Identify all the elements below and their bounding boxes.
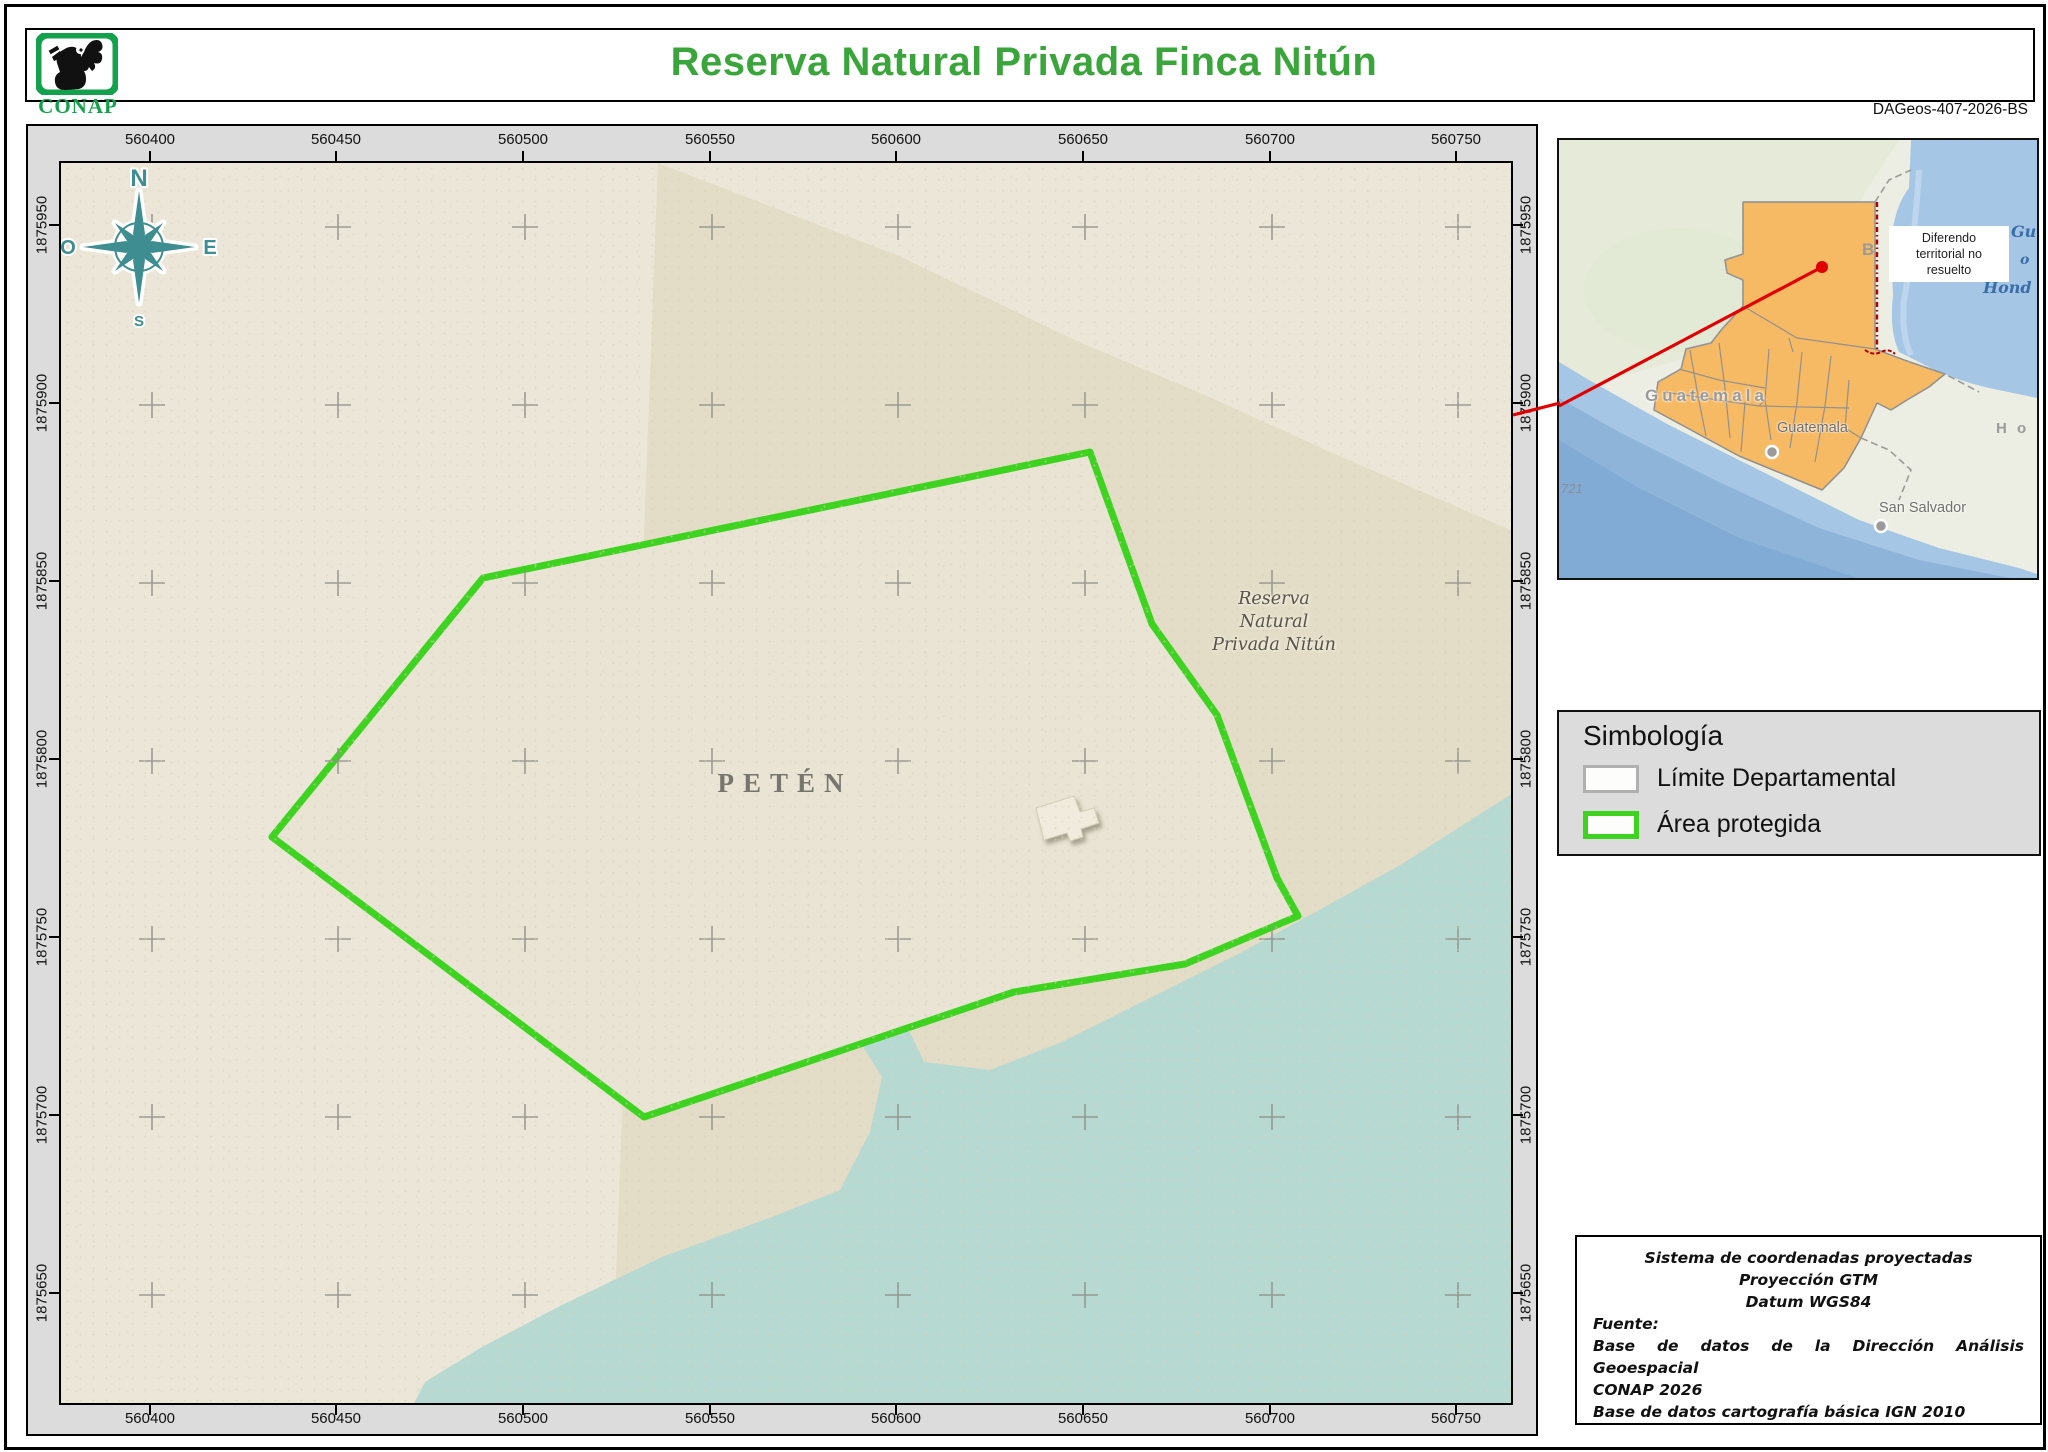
svg-text:E: E [203, 237, 216, 259]
easting-label-top: 560700 [1245, 131, 1295, 148]
northing-label-right: 1875750 [1518, 908, 1535, 966]
northing-label-left: 1875950 [34, 196, 51, 254]
legend-swatch-limite [1583, 765, 1639, 793]
department-label: PETÉN [717, 768, 852, 799]
easting-label-bottom: 560750 [1431, 1410, 1481, 1427]
easting-label-top: 560750 [1431, 131, 1481, 148]
inset-belize-partial-label: B [1862, 240, 1877, 260]
easting-label-bottom: 560450 [311, 1410, 361, 1427]
inset-capital-label: Guatemala [1777, 420, 1848, 436]
legend: Simbología Límite DepartamentalÁrea prot… [1557, 710, 2041, 856]
northing-label-right: 1875850 [1518, 552, 1535, 610]
inset-city-label: San Salvador [1879, 500, 1966, 516]
easting-label-top: 560400 [125, 131, 175, 148]
document-code: DAGeos-407-2026-BS [1873, 101, 2028, 119]
source-lines: Base de datos de la Dirección Análisis G… [1593, 1335, 2024, 1423]
inset-country-label: Guatemala [1645, 386, 1768, 406]
easting-label-top: 560500 [498, 131, 548, 148]
easting-label-bottom: 560550 [685, 1410, 735, 1427]
inset-road-label: 721 [1561, 481, 1583, 496]
inset-locator-map: Guatemala Guatemala San Salvador 721 H o… [1557, 138, 2039, 580]
easting-label-top: 560600 [871, 131, 921, 148]
map-sheet: Reserva Natural Privada Finca Nitún CONA… [0, 0, 2048, 1452]
conap-logo [36, 33, 118, 95]
northing-label-right: 1875900 [1518, 374, 1535, 432]
compass-rose: N E O S [59, 164, 224, 334]
easting-label-bottom: 560650 [1058, 1410, 1108, 1427]
northing-label-right: 1875800 [1518, 730, 1535, 788]
northing-label-right: 1875950 [1518, 196, 1535, 254]
legend-item-protegida: Área protegida [1583, 810, 1821, 839]
northing-label-right: 1875650 [1518, 1264, 1535, 1322]
legend-label: Área protegida [1657, 810, 1821, 839]
easting-label-bottom: 560500 [498, 1410, 548, 1427]
capital-city-dot [1766, 446, 1778, 458]
easting-label-top: 560650 [1058, 131, 1108, 148]
page-title: Reserva Natural Privada Finca Nitún [0, 40, 2048, 85]
svg-text:O: O [60, 237, 76, 259]
gulf-label-partial-1: Gu [2011, 222, 2036, 241]
northing-label-left: 1875900 [34, 374, 51, 432]
easting-label-bottom: 560400 [125, 1410, 175, 1427]
projection-info: Sistema de coordenadas proyectadasProyec… [1593, 1247, 2024, 1313]
easting-label-top: 560450 [311, 131, 361, 148]
svg-text:S: S [134, 313, 144, 330]
northing-label-left: 1875850 [34, 552, 51, 610]
northing-label-right: 1875700 [1518, 1086, 1535, 1144]
northing-label-left: 1875650 [34, 1264, 51, 1322]
easting-label-bottom: 560700 [1245, 1410, 1295, 1427]
inset-honduras-partial-label: H o [1996, 420, 2029, 437]
legend-swatch-protegida [1583, 811, 1639, 839]
san-salvador-dot [1875, 520, 1887, 532]
legend-item-limite: Límite Departamental [1583, 764, 1896, 793]
gulf-label-partial-2: o [2020, 252, 2029, 268]
svg-text:N: N [130, 165, 147, 192]
territorial-note: Diferendoterritorial noresuelto [1889, 226, 2009, 282]
reserve-name-label: ReservaNaturalPrivada Nitún [1212, 588, 1336, 657]
conap-wordmark: CONAP [30, 94, 126, 119]
easting-label-top: 560550 [685, 131, 735, 148]
credits-box: Sistema de coordenadas proyectadasProyec… [1575, 1235, 2042, 1425]
source-heading: Fuente: [1593, 1313, 2024, 1335]
northing-label-left: 1875700 [34, 1086, 51, 1144]
map-canvas: PETÉN ReservaNaturalPrivada Nitún [59, 161, 1513, 1405]
legend-label: Límite Departamental [1657, 764, 1896, 793]
legend-title: Simbología [1583, 720, 1723, 752]
northing-label-left: 1875800 [34, 730, 51, 788]
northing-label-left: 1875750 [34, 908, 51, 966]
easting-label-bottom: 560600 [871, 1410, 921, 1427]
